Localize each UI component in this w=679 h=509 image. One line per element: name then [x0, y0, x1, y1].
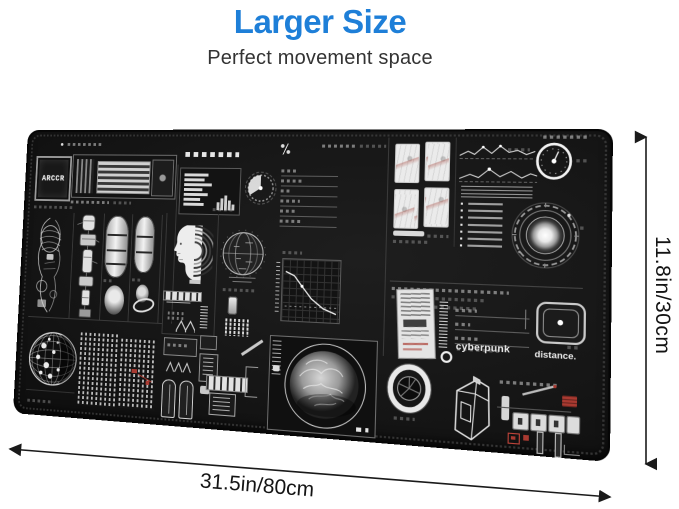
bracket	[525, 310, 533, 330]
decor-dashes	[213, 208, 236, 211]
fuse-box	[530, 413, 547, 432]
decor-dashes	[360, 145, 386, 148]
gauge-dial	[244, 171, 278, 205]
tube-pair	[178, 380, 194, 419]
machine-coil	[96, 161, 150, 194]
slat-column	[200, 306, 208, 328]
arccr-logo-panel: ARCCR	[34, 156, 72, 201]
mech-arm	[71, 213, 102, 320]
fuse-box	[566, 416, 580, 435]
keypad-grid	[225, 317, 249, 336]
film-strip	[163, 290, 202, 302]
zigzag	[174, 318, 195, 333]
bar	[185, 173, 209, 176]
decor-dashes	[104, 279, 115, 282]
receipt-card	[397, 290, 435, 358]
line-chart	[459, 163, 537, 184]
data-table	[280, 167, 341, 227]
decor-dashes	[282, 251, 302, 255]
paragraph-text	[461, 186, 533, 201]
product-title: Larger Size	[20, 2, 620, 42]
decor-dashes	[567, 346, 581, 350]
sketch-card	[393, 189, 419, 229]
machine-diagram-panel	[71, 154, 177, 199]
lens-eye	[510, 201, 580, 270]
mousepad: ARCCR	[13, 129, 613, 462]
bottle	[228, 296, 238, 315]
decor-dashes	[508, 148, 530, 151]
red-module	[562, 395, 577, 407]
machine-rotor	[151, 160, 174, 197]
shutter-core	[557, 320, 563, 326]
capsule-pod-1	[104, 216, 130, 279]
clock-gauge	[534, 142, 575, 181]
shutter-button	[536, 301, 586, 345]
decor-dashes	[580, 226, 587, 229]
bar-red	[184, 193, 208, 196]
product-subtitle: Perfect movement space	[20, 47, 620, 70]
head-profile	[165, 219, 214, 290]
bar-chart-panel	[178, 168, 241, 216]
red-dot	[553, 385, 556, 389]
wireframe-globe	[26, 329, 79, 388]
canister-3d	[446, 373, 493, 446]
height-label: 11.8in/30cm	[650, 236, 674, 376]
module-box	[163, 337, 197, 357]
anatomy-torso	[28, 214, 71, 316]
decor-dashes	[322, 145, 356, 148]
bullet-list	[460, 203, 504, 253]
decor-dashes	[543, 136, 590, 139]
product-image: Larger Size Perfect movement space ARCCR	[0, 0, 679, 509]
capsule-band	[136, 235, 153, 237]
film-strip	[206, 375, 248, 393]
chip	[273, 365, 280, 372]
percent-glyph	[280, 143, 291, 154]
decor-dashes	[576, 159, 587, 162]
sketch-card	[394, 144, 420, 183]
module-box	[200, 335, 217, 350]
red-chip	[132, 369, 138, 373]
bar	[184, 188, 203, 191]
decor-dashes	[185, 152, 239, 157]
capsule-band	[107, 249, 126, 252]
capsule-pod-2	[133, 216, 155, 273]
tire-ring	[385, 361, 432, 415]
decor-dashes	[68, 143, 103, 146]
sketch-card	[424, 142, 450, 182]
zigzag	[164, 359, 192, 375]
module-box	[209, 392, 236, 416]
header: Larger Size Perfect movement space	[20, 2, 620, 70]
dot-button	[440, 351, 452, 364]
data-columns	[77, 330, 118, 407]
brain-scan	[281, 339, 370, 435]
bar-red	[184, 183, 212, 186]
ruler-ticks	[439, 302, 449, 349]
machine-slats	[76, 159, 95, 193]
capsule-band	[107, 234, 126, 236]
decor-dashes	[132, 278, 141, 281]
bar	[183, 203, 203, 206]
bar	[184, 178, 204, 181]
capsule-band	[136, 251, 153, 254]
wireframe-dome	[219, 228, 267, 286]
sketch-card	[423, 187, 449, 227]
fuse-box	[548, 414, 565, 433]
arccr-logo-text: ARCCR	[42, 174, 65, 183]
grid-chart	[280, 258, 341, 324]
label-strip	[393, 230, 424, 236]
fuse-box	[512, 412, 529, 431]
decor-dashes	[113, 201, 131, 204]
bar	[184, 198, 201, 201]
distance-label: distance.	[534, 348, 576, 361]
capsule-band	[106, 262, 125, 265]
tube-pair	[161, 379, 176, 418]
bracket	[245, 366, 259, 398]
decor-dashes	[427, 234, 448, 238]
